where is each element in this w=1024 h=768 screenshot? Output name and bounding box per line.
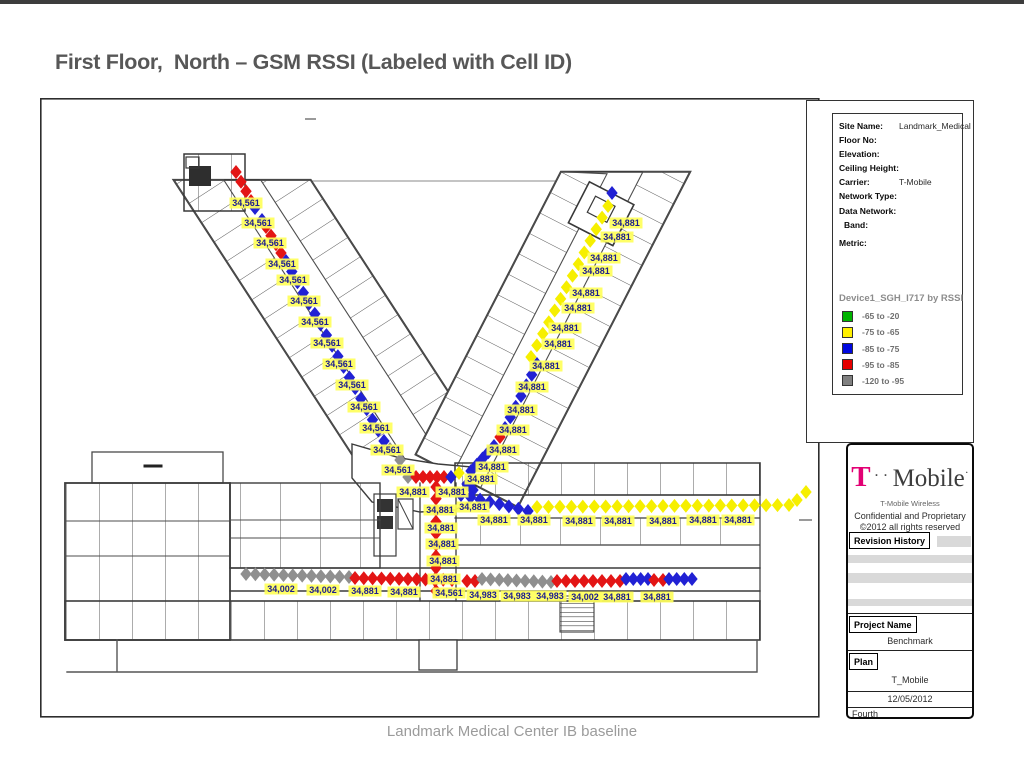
site-info-row: Floor No: <box>839 136 957 146</box>
legend-swatch <box>842 375 853 386</box>
svg-text:34,983: 34,983 <box>503 591 531 601</box>
svg-text:34,881: 34,881 <box>564 303 592 313</box>
site-info-row: Band: <box>839 221 957 231</box>
rssi-marker-chain-red <box>410 470 449 484</box>
svg-text:34,881: 34,881 <box>612 218 640 228</box>
cell-id-label: 34,881 <box>549 323 582 334</box>
project-name-value: Benchmark <box>848 636 972 646</box>
svg-text:34,881: 34,881 <box>351 586 379 596</box>
svg-text:34,002: 34,002 <box>309 585 337 595</box>
site-info-row: Site Name:Landmark_Medical <box>839 122 957 132</box>
info-panel-container: Site Name:Landmark_MedicalFloor No:Eleva… <box>806 100 974 443</box>
cell-id-label: 34,561 <box>371 445 404 456</box>
cell-id-label: 34,561 <box>311 338 344 349</box>
cell-id-label: 34,881 <box>465 474 498 485</box>
legend-item: -120 to -95 <box>839 375 957 386</box>
cell-id-label: 34,983 <box>501 591 534 602</box>
svg-text:34,881: 34,881 <box>390 587 418 597</box>
empty-revision-row <box>848 555 972 563</box>
cell-id-label: 34,561 <box>254 238 287 249</box>
cell-id-label: 34,881 <box>505 405 538 416</box>
svg-text:34,561: 34,561 <box>350 402 378 412</box>
svg-text:34,881: 34,881 <box>604 516 632 526</box>
svg-text:34,002: 34,002 <box>571 592 599 602</box>
floor-plan-canvas: 34,56134,56134,56134,56134,56134,56134,5… <box>40 98 820 718</box>
legend-item: -85 to -75 <box>839 343 957 354</box>
cell-id-label: 34,881 <box>424 505 457 516</box>
cell-id-label: 34,881 <box>497 425 530 436</box>
svg-text:34,561: 34,561 <box>362 423 390 433</box>
cell-id-label: 34,881 <box>570 288 603 299</box>
cell-id-label: 34,561 <box>433 588 466 599</box>
rssi-legend: Device1_SGH_I717 by RSSI -65 to -20-75 t… <box>839 293 957 387</box>
cell-id-label: 34,881 <box>542 339 575 350</box>
entrance <box>419 640 457 670</box>
site-info-field-label: Band: <box>844 221 904 231</box>
svg-text:34,881: 34,881 <box>551 323 579 333</box>
empty-revision-row <box>848 599 972 606</box>
tmobile-logo-mobile: Mobile <box>893 465 965 492</box>
svg-text:34,561: 34,561 <box>435 588 463 598</box>
site-info-row: Ceiling Height: <box>839 164 957 174</box>
divider <box>848 691 972 692</box>
site-info-field-label: Elevation: <box>839 150 899 160</box>
svg-text:34,561: 34,561 <box>290 296 318 306</box>
svg-text:34,561: 34,561 <box>373 445 401 455</box>
site-info-field-label: Network Type: <box>839 192 899 202</box>
cell-id-label: 34,561 <box>242 218 275 229</box>
svg-text:34,881: 34,881 <box>399 487 427 497</box>
svg-text:34,561: 34,561 <box>384 465 412 475</box>
svg-text:34,881: 34,881 <box>478 462 506 472</box>
svg-text:34,983: 34,983 <box>469 590 497 600</box>
divider <box>848 707 972 708</box>
copyright-note: ©2012 all rights reserved <box>848 522 972 532</box>
svg-text:34,561: 34,561 <box>338 380 366 390</box>
cell-id-label: 34,881 <box>641 592 674 603</box>
svg-text:34,881: 34,881 <box>572 288 600 298</box>
cell-id-label: 34,881 <box>647 516 680 527</box>
legend-range: -85 to -75 <box>862 344 899 354</box>
cell-id-label: 34,881 <box>687 515 720 526</box>
cell-id-label: 34,881 <box>478 515 511 526</box>
cell-id-label: 34,881 <box>397 487 430 498</box>
page-title: First Floor, North – GSM RSSI (Labeled w… <box>55 50 572 75</box>
site-info-field-value: T-Mobile <box>899 178 932 188</box>
svg-text:34,881: 34,881 <box>429 556 457 566</box>
legend-range: -95 to -85 <box>862 360 899 370</box>
svg-text:34,881: 34,881 <box>467 474 495 484</box>
svg-text:34,561: 34,561 <box>313 338 341 348</box>
legend-swatch <box>842 311 853 322</box>
svg-text:34,561: 34,561 <box>256 238 284 248</box>
cell-id-label: 34,881 <box>518 515 551 526</box>
cell-id-label: 34,561 <box>323 359 356 370</box>
cell-id-label: 34,881 <box>601 592 634 603</box>
svg-text:34,561: 34,561 <box>279 275 307 285</box>
cell-id-label: 34,881 <box>476 462 509 473</box>
svg-text:34,881: 34,881 <box>649 516 677 526</box>
svg-text:34,881: 34,881 <box>489 445 517 455</box>
plan-value: T_Mobile <box>848 675 972 685</box>
cell-id-label: 34,881 <box>588 253 621 264</box>
date-value: 12/05/2012 <box>848 694 972 704</box>
cell-id-label: 34,561 <box>336 380 369 391</box>
site-info-field-value: Landmark_Medical <box>899 122 971 132</box>
svg-text:34,881: 34,881 <box>480 515 508 525</box>
legend-item: -95 to -85 <box>839 359 957 370</box>
svg-text:34,881: 34,881 <box>438 487 466 497</box>
titleblock: T · · Mobile· T-Mobile Wireless Confiden… <box>846 443 974 719</box>
svg-text:34,002: 34,002 <box>267 584 295 594</box>
floor-value: Fourth <box>852 709 972 719</box>
revision-history-bar <box>937 536 971 547</box>
svg-text:34,881: 34,881 <box>603 592 631 602</box>
cell-id-label: 34,983 <box>467 590 500 601</box>
cell-id-label: 34,002 <box>307 585 340 596</box>
cell-id-label: 34,881 <box>457 502 490 513</box>
tmobile-logo-enddot: · <box>965 465 969 479</box>
site-info-panel: Site Name:Landmark_MedicalFloor No:Eleva… <box>832 113 963 395</box>
svg-text:34,561: 34,561 <box>244 218 272 228</box>
svg-text:34,881: 34,881 <box>565 516 593 526</box>
cell-id-label: 34,881 <box>601 232 634 243</box>
company-name: T-Mobile Wireless <box>848 499 972 508</box>
confidential-note: Confidential and Proprietary <box>848 511 972 521</box>
cell-id-label: 34,002 <box>265 584 298 595</box>
cell-id-label: 34,561 <box>288 296 321 307</box>
cell-id-label: 34,881 <box>563 516 596 527</box>
legend-item: -65 to -20 <box>839 311 957 322</box>
slide-footer: Landmark Medical Center IB baseline <box>0 723 1024 740</box>
svg-text:34,881: 34,881 <box>507 405 535 415</box>
cell-id-label: 34,881 <box>425 523 458 534</box>
legend-swatch <box>842 359 853 370</box>
legend-swatch <box>842 327 853 338</box>
site-info-field-label: Ceiling Height: <box>839 164 899 174</box>
svg-text:34,881: 34,881 <box>643 592 671 602</box>
tmobile-logo-dots: · · <box>871 468 893 482</box>
cell-id-label: 34,561 <box>277 275 310 286</box>
cell-id-label: 34,881 <box>427 556 460 567</box>
cell-id-label: 34,881 <box>388 587 421 598</box>
svg-text:34,881: 34,881 <box>582 266 610 276</box>
cell-id-label: 34,881 <box>426 539 459 550</box>
cell-id-label: 34,881 <box>722 515 755 526</box>
tick-mark <box>799 519 812 521</box>
svg-text:34,881: 34,881 <box>520 515 548 525</box>
site-info-row: Data Network: <box>839 207 957 217</box>
cell-id-label: 34,561 <box>382 465 415 476</box>
cell-id-label: 34,561 <box>348 402 381 413</box>
legend-item: -75 to -65 <box>839 327 957 338</box>
legend-swatch <box>842 343 853 354</box>
svg-text:34,881: 34,881 <box>426 505 454 515</box>
site-info-field-label: Metric: <box>839 239 899 249</box>
cell-id-label: 34,881 <box>428 574 461 585</box>
cell-id-label: 34,983 <box>534 591 567 602</box>
legend-range: -75 to -65 <box>862 327 899 337</box>
svg-text:34,881: 34,881 <box>499 425 527 435</box>
site-info-row: Network Type: <box>839 192 957 202</box>
legend-title: Device1_SGH_I717 by RSSI <box>839 293 957 304</box>
svg-text:34,561: 34,561 <box>301 317 329 327</box>
svg-text:34,881: 34,881 <box>430 574 458 584</box>
slide-top-border <box>0 0 1024 4</box>
svg-text:34,881: 34,881 <box>427 523 455 533</box>
cell-id-label: 34,881 <box>487 445 520 456</box>
cell-id-label: 34,881 <box>516 382 549 393</box>
legend-range: -120 to -95 <box>862 376 904 386</box>
plan-label: Plan <box>849 653 878 670</box>
site-info-rows: Site Name:Landmark_MedicalFloor No:Eleva… <box>839 122 957 249</box>
svg-text:34,881: 34,881 <box>518 382 546 392</box>
divider <box>848 613 972 614</box>
cell-id-label: 34,561 <box>230 198 263 209</box>
tmobile-logo: T · · Mobile· <box>848 461 972 494</box>
svg-text:34,881: 34,881 <box>544 339 572 349</box>
site-info-row: Elevation: <box>839 150 957 160</box>
svg-text:34,881: 34,881 <box>532 361 560 371</box>
svg-text:34,881: 34,881 <box>689 515 717 525</box>
empty-revision-row <box>848 573 972 583</box>
legend-items: -65 to -20-75 to -65-85 to -75-95 to -85… <box>839 311 957 387</box>
svg-text:34,881: 34,881 <box>428 539 456 549</box>
svg-text:34,561: 34,561 <box>325 359 353 369</box>
svg-text:34,561: 34,561 <box>232 198 260 208</box>
legend-range: -65 to -20 <box>862 311 899 321</box>
site-info-field-label: Site Name: <box>839 122 899 132</box>
cell-id-label: 34,002 <box>569 592 602 603</box>
svg-text:34,881: 34,881 <box>724 515 752 525</box>
cell-id-label: 34,881 <box>580 266 613 277</box>
cell-id-label: 34,881 <box>602 516 635 527</box>
svg-text:34,983: 34,983 <box>536 591 564 601</box>
cell-id-label: 34,561 <box>360 423 393 434</box>
cell-id-label: 34,881 <box>562 303 595 314</box>
tmobile-logo-t: T <box>851 461 870 493</box>
divider <box>848 650 972 651</box>
svg-text:34,881: 34,881 <box>590 253 618 263</box>
site-info-field-label: Floor No: <box>839 136 899 146</box>
svg-text:34,881: 34,881 <box>459 502 487 512</box>
site-info-field-label: Carrier: <box>839 178 899 188</box>
cell-id-label: 34,881 <box>436 487 469 498</box>
revision-history-label: Revision History <box>849 532 930 549</box>
cell-id-label: 34,561 <box>266 259 299 270</box>
svg-text:34,561: 34,561 <box>268 259 296 269</box>
cell-id-label: 34,881 <box>530 361 563 372</box>
site-info-row: Metric: <box>839 239 957 249</box>
site-info-field-label: Data Network: <box>839 207 899 217</box>
site-info-row: Carrier:T-Mobile <box>839 178 957 188</box>
cell-id-label: 34,881 <box>349 586 382 597</box>
cell-id-label: 34,561 <box>299 317 332 328</box>
project-name-label: Project Name <box>849 616 917 633</box>
cell-id-label: 34,881 <box>610 218 643 229</box>
svg-text:34,881: 34,881 <box>603 232 631 242</box>
